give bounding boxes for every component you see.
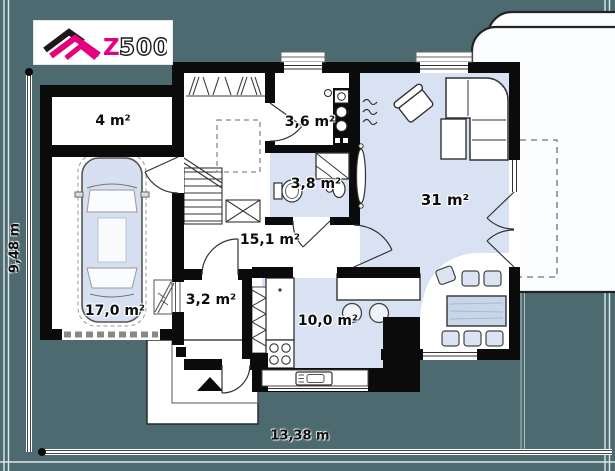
window-kitchen-bottom (268, 386, 368, 391)
logo-500: 500 (119, 35, 167, 61)
z500-logo-graphic: Z 500 (39, 24, 167, 62)
logo-z: Z (103, 35, 120, 61)
kitchen-counter-icon (266, 278, 294, 368)
washer-icon (335, 90, 349, 103)
extension-line (521, 293, 525, 450)
room-label-kitchen: 10,0 m² (298, 313, 358, 329)
coffee-table-icon (441, 119, 466, 159)
window-top-1 (281, 52, 325, 73)
dimension-dot (25, 68, 33, 76)
dimension-width-label: 13,38 m (270, 429, 329, 444)
room-label-bathroom: 3,8 m² (291, 176, 341, 192)
z500-logo: Z 500 (33, 20, 173, 65)
car-icon (75, 154, 149, 326)
room-label-garage: 17,0 m² (85, 303, 145, 319)
room-label-vestibule: 3,2 m² (186, 292, 236, 308)
room-label-storage: 4 m² (95, 113, 130, 129)
window-living-right (509, 160, 520, 192)
room-label-utility: 3,6 m² (285, 114, 335, 130)
room-label-hall: 15,1 m² (240, 232, 300, 248)
porch (147, 340, 258, 424)
window-dining-bottom (423, 349, 477, 360)
utility-valve-icon (325, 90, 332, 97)
dimension-height-label: 9,48 m (8, 223, 23, 273)
dimension-dot (38, 448, 46, 456)
floor-plan-page: Z 500 4 m² 17,0 m² 15,1 m² 3,6 m² 3,8 m²… (0, 0, 615, 471)
dining-table-icon (447, 296, 506, 326)
closet-hatch (252, 287, 266, 353)
window-top-2 (416, 52, 472, 73)
garage-hatch-window (154, 280, 174, 314)
porch-post (176, 347, 186, 357)
kitchen-sink-icon (262, 370, 368, 386)
stove-icon (266, 340, 294, 368)
floor-plan (0, 0, 615, 471)
room-label-living: 31 m² (421, 191, 469, 209)
